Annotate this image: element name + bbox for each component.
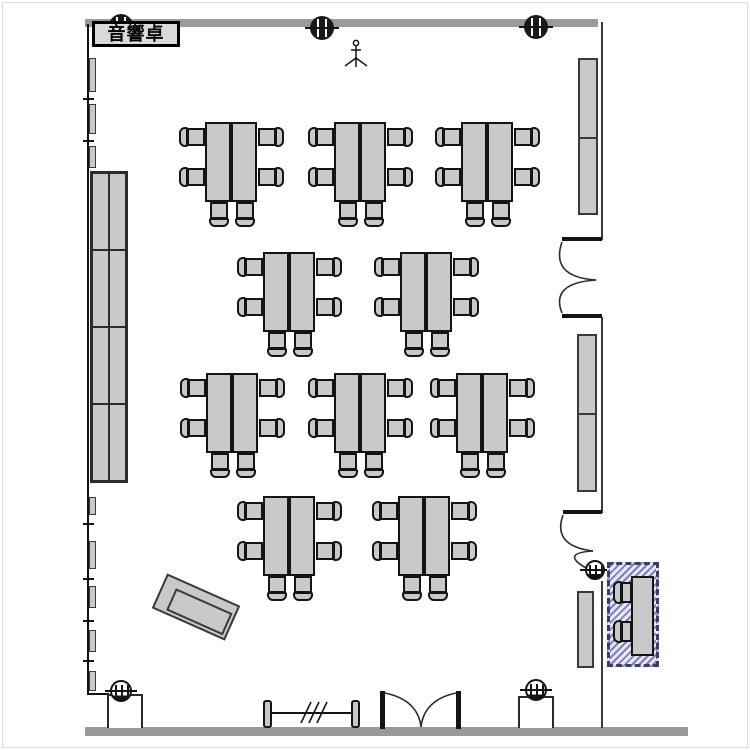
chair (180, 418, 206, 438)
chair-seat (294, 576, 312, 593)
cabinet-section (92, 404, 109, 481)
chair (209, 202, 229, 227)
table (205, 122, 231, 202)
chair-seat (621, 621, 632, 642)
chair-seat (453, 258, 471, 276)
column-slit (127, 685, 129, 701)
chair (372, 501, 398, 521)
chair (453, 297, 479, 317)
chair (486, 453, 506, 478)
chair-seat (451, 502, 469, 520)
chair-back (402, 592, 422, 601)
chair (179, 167, 205, 187)
window-tick (83, 578, 94, 580)
chair-back (236, 469, 256, 478)
chair (613, 620, 632, 643)
chair-seat (443, 128, 461, 146)
panel-divider (580, 137, 596, 139)
chair (316, 297, 342, 317)
chair (428, 576, 448, 601)
side-panel (577, 591, 594, 668)
chair-seat (294, 332, 312, 349)
chair-seat (487, 453, 505, 470)
chair-back (275, 127, 284, 147)
cabinet-section (92, 173, 109, 250)
chair-seat (258, 128, 276, 146)
chair-seat (380, 502, 398, 520)
chair (293, 576, 313, 601)
chair-back (531, 167, 540, 187)
chair (364, 202, 384, 227)
chair (308, 127, 334, 147)
chair-back (486, 469, 506, 478)
window-segment (89, 58, 96, 92)
chair-back (276, 418, 285, 438)
chair-back (470, 257, 479, 277)
table-group (237, 496, 342, 602)
chair-back (333, 541, 342, 561)
chair-seat (451, 542, 469, 560)
chair-seat (188, 419, 206, 437)
chair (387, 127, 413, 147)
chair-back (267, 592, 287, 601)
chair (179, 127, 205, 147)
window-segment (89, 497, 96, 515)
table (334, 373, 360, 453)
chair-back (333, 501, 342, 521)
chair (180, 378, 206, 398)
chair-back (267, 348, 287, 357)
column-crossbar (519, 26, 553, 28)
chair-seat (187, 128, 205, 146)
podium (152, 573, 241, 640)
column-slit (601, 565, 603, 579)
chair-back (404, 127, 413, 147)
table-group (308, 373, 413, 479)
table (482, 373, 508, 453)
column-slit (595, 565, 597, 579)
chair-back (338, 218, 358, 227)
chair-back (404, 418, 413, 438)
chair (509, 418, 535, 438)
column-crossbar (520, 689, 552, 691)
chair-seat (188, 379, 206, 397)
station-desk (631, 576, 654, 656)
chair-seat (245, 542, 263, 560)
chair-back (364, 469, 384, 478)
chair (374, 257, 400, 277)
chair-seat (509, 379, 527, 397)
chair-seat (387, 419, 405, 437)
side-panel (578, 58, 598, 215)
chair (338, 453, 358, 478)
chair-back (293, 348, 313, 357)
table-group (308, 122, 413, 228)
chair (435, 127, 461, 147)
chair-seat (438, 379, 456, 397)
chair-seat (443, 168, 461, 186)
table (360, 122, 386, 202)
window-segment (89, 146, 96, 168)
chair-back (333, 297, 342, 317)
window-tick (83, 140, 94, 142)
chair-seat (316, 298, 334, 316)
chair-back (531, 127, 540, 147)
chair (308, 378, 334, 398)
table (289, 496, 315, 576)
chair-seat (339, 202, 357, 219)
chair (387, 418, 413, 438)
chair (387, 378, 413, 398)
chair-seat (316, 379, 334, 397)
table (360, 373, 386, 453)
cabinet-section (109, 404, 126, 481)
chair (430, 332, 450, 357)
table (263, 496, 289, 576)
chair (316, 541, 342, 561)
chair-back (276, 378, 285, 398)
chair-seat (259, 379, 277, 397)
chair (267, 576, 287, 601)
chair-seat (380, 542, 398, 560)
table (206, 373, 232, 453)
chair-seat (316, 168, 334, 186)
table (232, 373, 258, 453)
chair-seat (514, 128, 532, 146)
chair (237, 541, 263, 561)
column-slit (530, 684, 532, 700)
chair-back (430, 348, 450, 357)
chair-seat (387, 379, 405, 397)
column-slit (589, 565, 591, 579)
chair-seat (429, 576, 447, 593)
chair (387, 167, 413, 187)
chair-seat (382, 298, 400, 316)
chair-seat (453, 298, 471, 316)
chair-seat (268, 576, 286, 593)
window-tick (83, 98, 94, 100)
audio-console-label: 音響卓 (92, 21, 180, 47)
chair (372, 541, 398, 561)
chair-seat (509, 419, 527, 437)
chair-back (333, 257, 342, 277)
chair-back (210, 469, 230, 478)
chair-seat (245, 298, 263, 316)
chair (613, 581, 632, 604)
chair-seat (245, 502, 263, 520)
table (424, 496, 450, 576)
chair-back (404, 348, 424, 357)
chair-back (338, 469, 358, 478)
column-crossbar (105, 690, 137, 692)
chair (514, 127, 540, 147)
chair (267, 332, 287, 357)
chair-seat (259, 419, 277, 437)
chair (237, 501, 263, 521)
window-tick (83, 523, 94, 525)
table (456, 373, 482, 453)
chair-seat (236, 202, 254, 219)
chair (237, 297, 263, 317)
cabinet-section (109, 173, 126, 250)
chair (460, 453, 480, 478)
table-group (435, 122, 540, 228)
chair-seat (316, 258, 334, 276)
chair (509, 378, 535, 398)
chair-seat (405, 332, 423, 349)
chair-seat (403, 576, 421, 593)
chair (430, 418, 456, 438)
cabinet-section (109, 250, 126, 327)
chair (374, 297, 400, 317)
chair-seat (365, 202, 383, 219)
chair-back (364, 218, 384, 227)
chair-back (404, 167, 413, 187)
table (426, 252, 452, 332)
cabinet-section (92, 327, 109, 404)
chair-back (209, 218, 229, 227)
chair (235, 202, 255, 227)
chair-seat (245, 258, 263, 276)
chair-back (468, 501, 477, 521)
table-group (372, 496, 477, 602)
window-segment (89, 586, 96, 608)
table-group (374, 252, 479, 358)
chair (316, 501, 342, 521)
chair-seat (316, 419, 334, 437)
chair-back (526, 378, 535, 398)
window-tick (83, 660, 94, 662)
column-slit (121, 685, 123, 701)
chair (259, 418, 285, 438)
chair (453, 257, 479, 277)
chair (402, 576, 422, 601)
chair (364, 453, 384, 478)
chair (308, 167, 334, 187)
window-segment (89, 630, 96, 652)
table (231, 122, 257, 202)
table-group (179, 122, 284, 228)
chair-seat (387, 168, 405, 186)
chair (430, 378, 456, 398)
chair (293, 332, 313, 357)
window-segment (89, 104, 96, 134)
cabinet-section (109, 327, 126, 404)
chair (237, 257, 263, 277)
column-slit (536, 684, 538, 700)
chair-seat (237, 453, 255, 470)
window-segment (89, 671, 96, 691)
table (461, 122, 487, 202)
chair (451, 501, 477, 521)
chair-seat (438, 419, 456, 437)
chair-seat (339, 453, 357, 470)
chair-back (460, 469, 480, 478)
chair-back (468, 541, 477, 561)
wall-cabinet (90, 171, 128, 483)
chair-seat (211, 453, 229, 470)
column-slit (115, 685, 117, 701)
chair-seat (268, 332, 286, 349)
chair-seat (492, 202, 510, 219)
chair-seat (621, 582, 632, 603)
furniture-layer (0, 0, 750, 750)
chair (259, 378, 285, 398)
chair-seat (187, 168, 205, 186)
chair (435, 167, 461, 187)
table (289, 252, 315, 332)
window-tick (83, 620, 94, 622)
chair-back (293, 592, 313, 601)
chair (338, 202, 358, 227)
chair-seat (316, 502, 334, 520)
chair (514, 167, 540, 187)
table (398, 496, 424, 576)
chair-seat (210, 202, 228, 219)
chair-seat (258, 168, 276, 186)
chair-back (470, 297, 479, 317)
floor-plan: 音響卓 (0, 0, 750, 750)
chair-seat (382, 258, 400, 276)
column-crossbar (580, 569, 610, 571)
chair-back (465, 218, 485, 227)
chair (258, 127, 284, 147)
panel-divider (579, 413, 595, 415)
chair-seat (461, 453, 479, 470)
chair-back (428, 592, 448, 601)
chair (404, 332, 424, 357)
chair-seat (387, 128, 405, 146)
column-slit (542, 684, 544, 700)
chair-seat (514, 168, 532, 186)
chair (236, 453, 256, 478)
chair (258, 167, 284, 187)
table-group (180, 373, 285, 479)
chair (465, 202, 485, 227)
chair-back (235, 218, 255, 227)
chair-back (526, 418, 535, 438)
table (263, 252, 289, 332)
table-group (237, 252, 342, 358)
chair-seat (316, 128, 334, 146)
chair-back (275, 167, 284, 187)
chair (210, 453, 230, 478)
chair-back (491, 218, 511, 227)
table (487, 122, 513, 202)
chair (491, 202, 511, 227)
window-segment (89, 541, 96, 569)
cabinet-section (92, 250, 109, 327)
table-group (430, 373, 535, 479)
chair (308, 418, 334, 438)
podium-inner (166, 588, 232, 635)
chair-seat (466, 202, 484, 219)
chair-back (404, 378, 413, 398)
chair (316, 257, 342, 277)
chair (451, 541, 477, 561)
column-crossbar (305, 27, 339, 29)
side-panel (577, 334, 597, 492)
chair-seat (365, 453, 383, 470)
table (400, 252, 426, 332)
chair-seat (431, 332, 449, 349)
table (334, 122, 360, 202)
chair-seat (316, 542, 334, 560)
